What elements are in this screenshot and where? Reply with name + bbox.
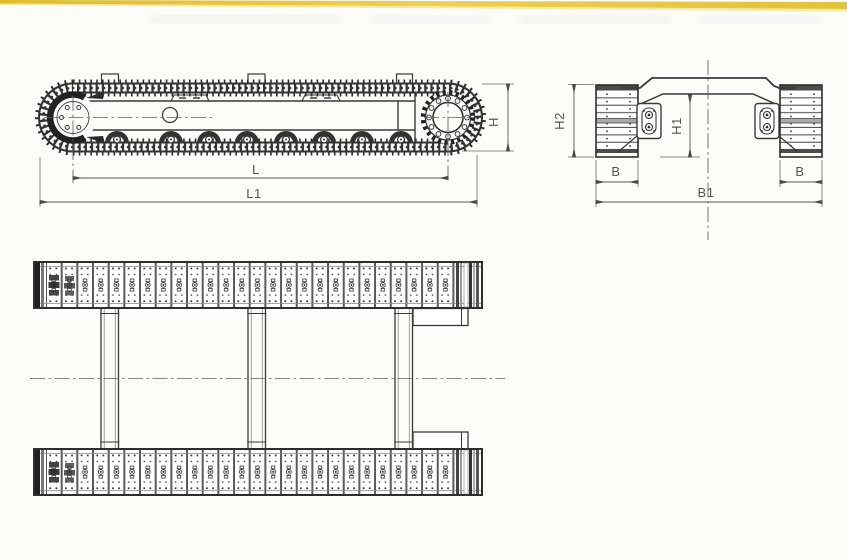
dim-label-L1: L1	[246, 186, 261, 201]
plan-top-track	[34, 262, 482, 308]
dim-label-H1: H1	[669, 117, 684, 135]
right-guide-block	[755, 104, 779, 139]
left-guide-block	[637, 104, 661, 139]
dim-label-B-right: B	[795, 164, 804, 179]
plan-bottom-track	[34, 449, 482, 495]
front-left-track	[596, 85, 638, 157]
bleed-through-ghost	[150, 15, 820, 24]
dim-label-B-left: B	[611, 164, 620, 179]
front-right-track	[780, 85, 822, 157]
dim-label-H: H	[486, 117, 501, 127]
drawing-canvas: H L L1	[0, 0, 847, 559]
dim-label-H2: H2	[552, 112, 567, 130]
drawing-sheet: H L L1	[0, 0, 847, 559]
dim-label-L: L	[252, 162, 260, 177]
dim-label-B1: B1	[698, 185, 715, 200]
